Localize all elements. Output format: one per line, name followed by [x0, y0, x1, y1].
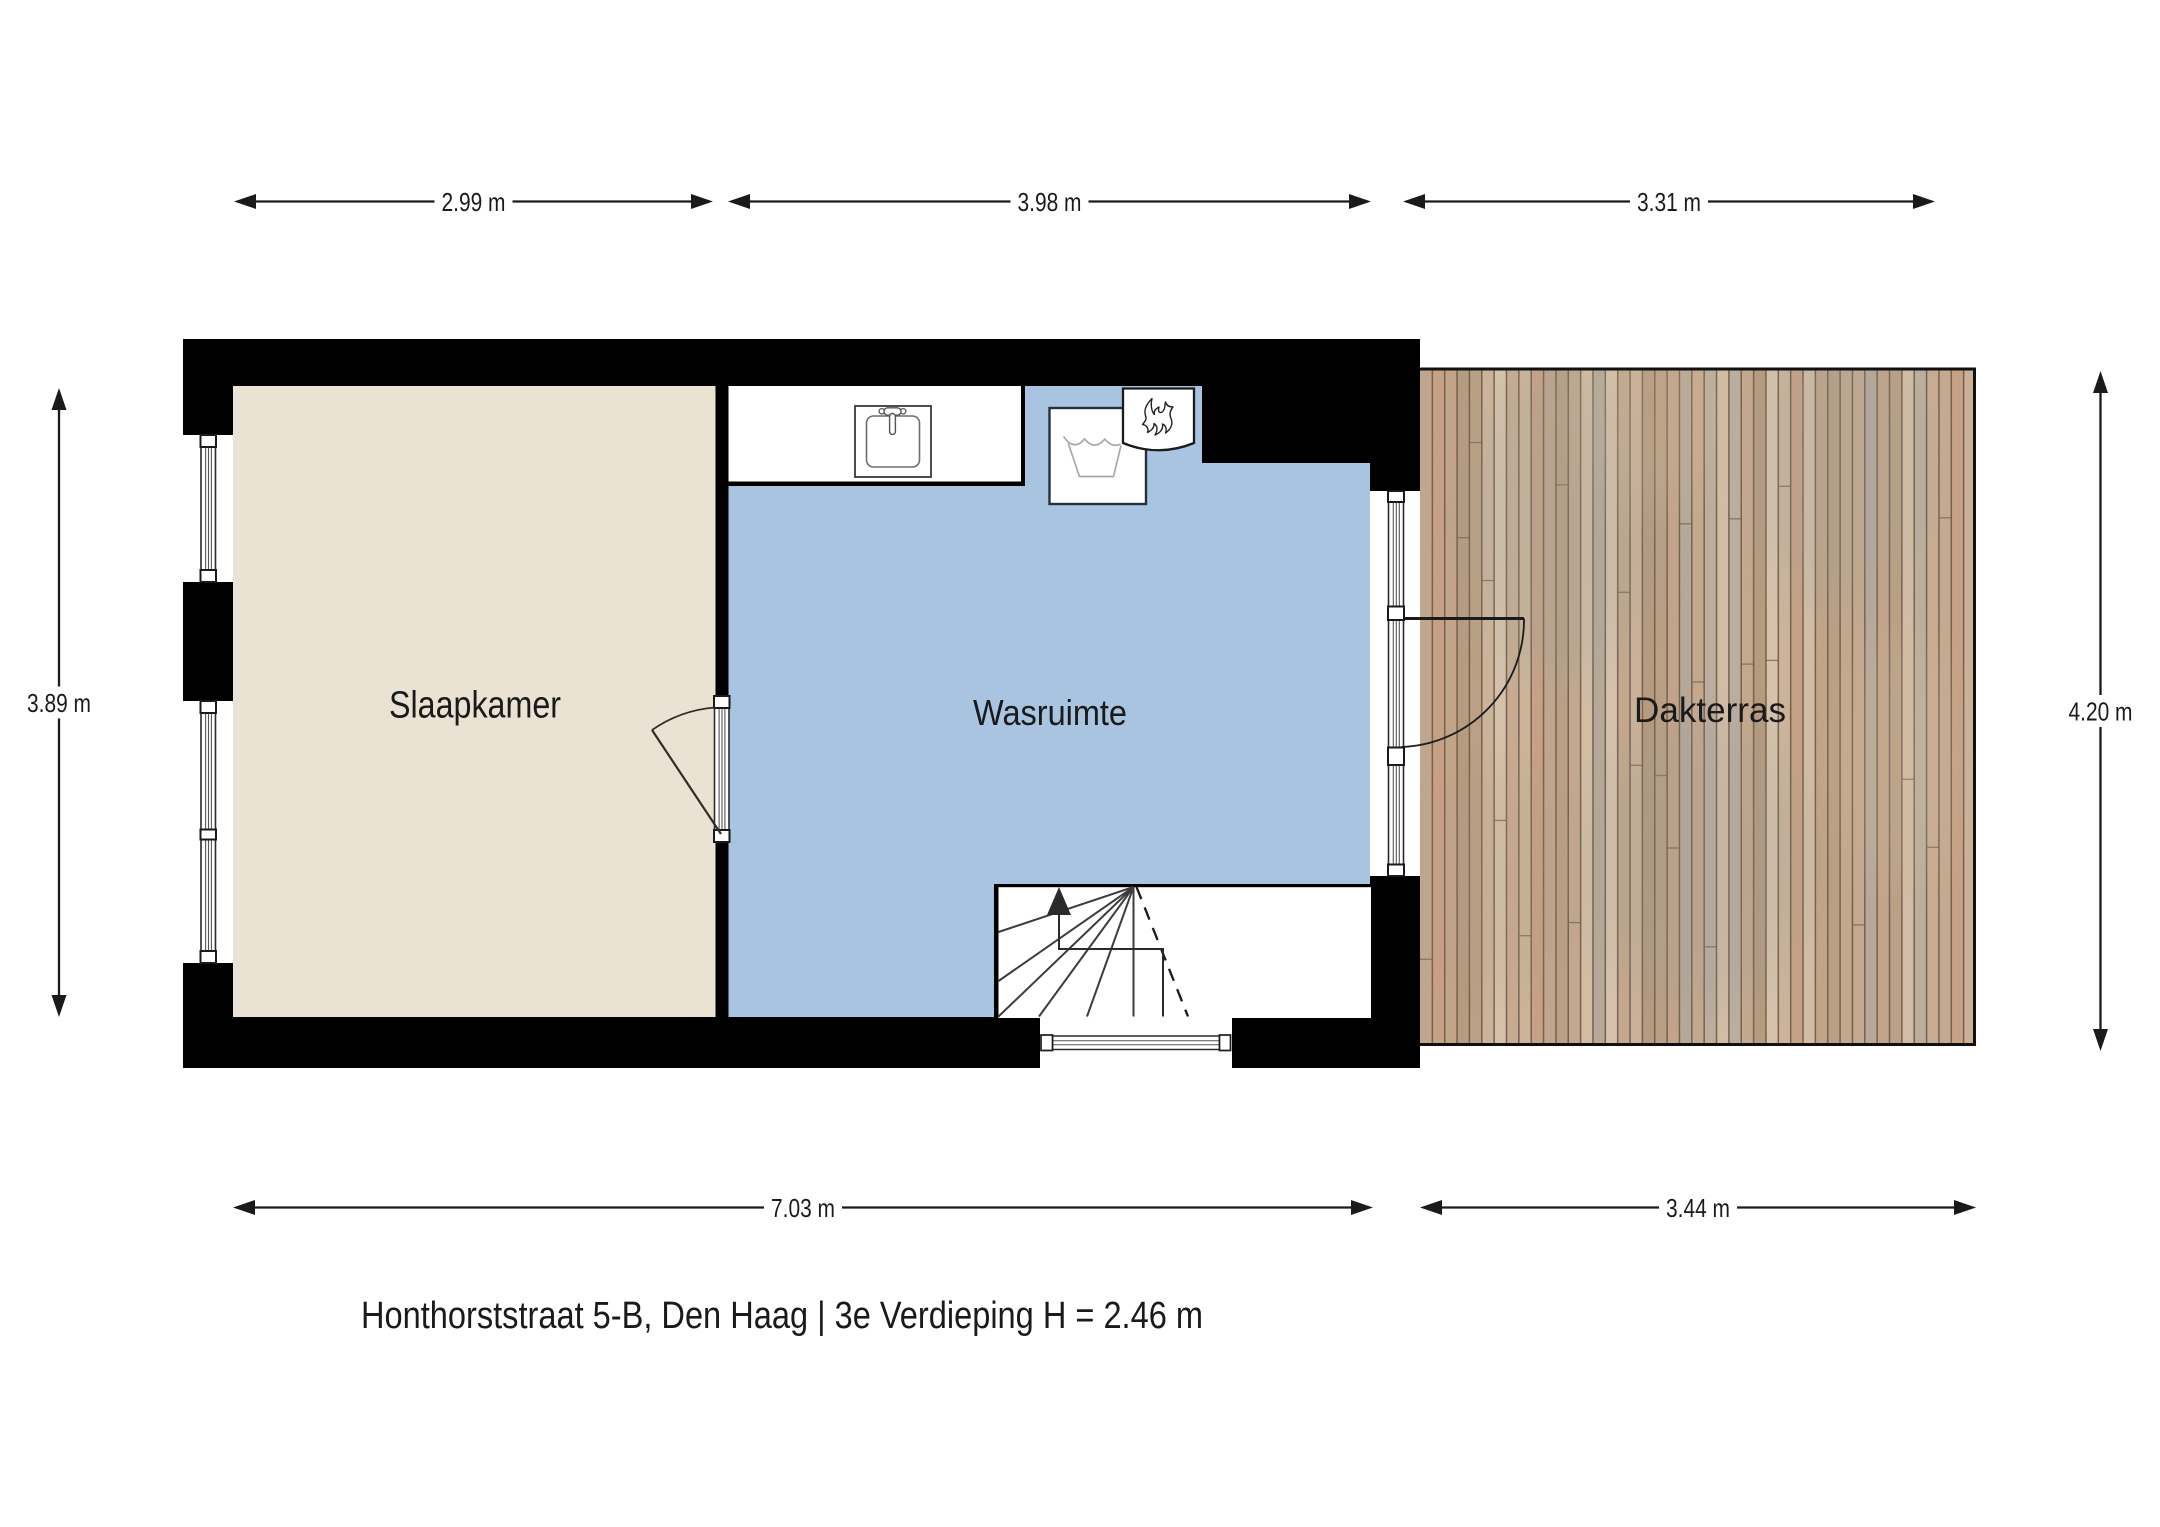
svg-text:Honthorststraat 5-B, Den Haag: Honthorststraat 5-B, Den Haag | 3e Verdi… [361, 1295, 1203, 1337]
svg-text:3.98 m: 3.98 m [1018, 187, 1082, 217]
svg-text:3.31 m: 3.31 m [1637, 187, 1701, 217]
svg-text:4.20 m: 4.20 m [2069, 697, 2133, 727]
svg-text:Dakterras: Dakterras [1634, 691, 1786, 730]
svg-text:2.99 m: 2.99 m [442, 187, 506, 217]
svg-text:3.89 m: 3.89 m [27, 688, 91, 718]
svg-text:Wasruimte: Wasruimte [973, 692, 1127, 733]
svg-text:7.03 m: 7.03 m [771, 1193, 835, 1223]
svg-text:3.44 m: 3.44 m [1666, 1193, 1730, 1223]
svg-text:Slaapkamer: Slaapkamer [389, 685, 561, 727]
